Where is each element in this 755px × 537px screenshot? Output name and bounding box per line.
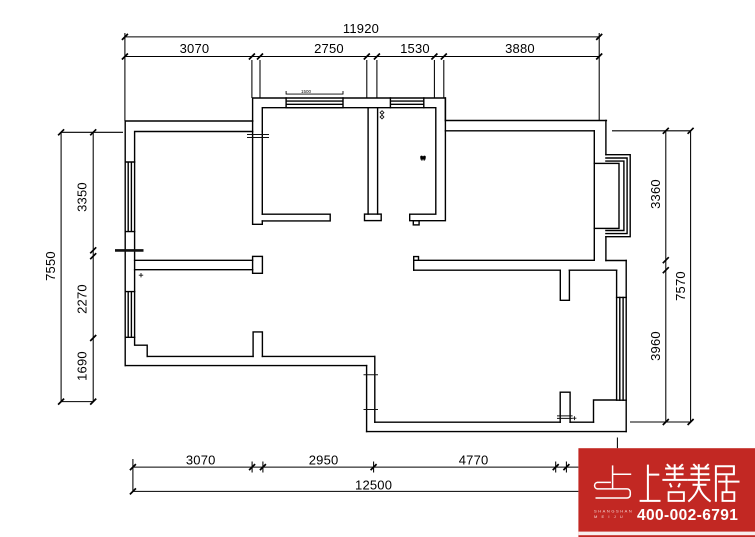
svg-text:1690: 1690 — [75, 351, 90, 381]
svg-text:1500: 1500 — [301, 89, 312, 94]
svg-text:MEIJU: MEIJU — [594, 514, 627, 519]
svg-text:7570: 7570 — [673, 271, 688, 301]
svg-text:11920: 11920 — [343, 21, 379, 36]
svg-text:2750: 2750 — [314, 41, 344, 56]
svg-text:3350: 3350 — [75, 182, 90, 212]
svg-text:400-002-6791: 400-002-6791 — [637, 507, 738, 524]
svg-text:3070: 3070 — [180, 41, 210, 56]
svg-text:3880: 3880 — [505, 41, 535, 56]
svg-text:12500: 12500 — [355, 477, 392, 492]
svg-text:2950: 2950 — [309, 453, 339, 468]
svg-text:3070: 3070 — [186, 453, 216, 468]
svg-text:3360: 3360 — [648, 179, 663, 209]
svg-text:1530: 1530 — [400, 41, 430, 56]
svg-text:2270: 2270 — [75, 284, 90, 314]
svg-text:4770: 4770 — [459, 453, 489, 468]
svg-text:3960: 3960 — [648, 331, 663, 361]
svg-text:7550: 7550 — [43, 251, 58, 281]
svg-text:SHANGSHAN: SHANGSHAN — [594, 509, 633, 514]
